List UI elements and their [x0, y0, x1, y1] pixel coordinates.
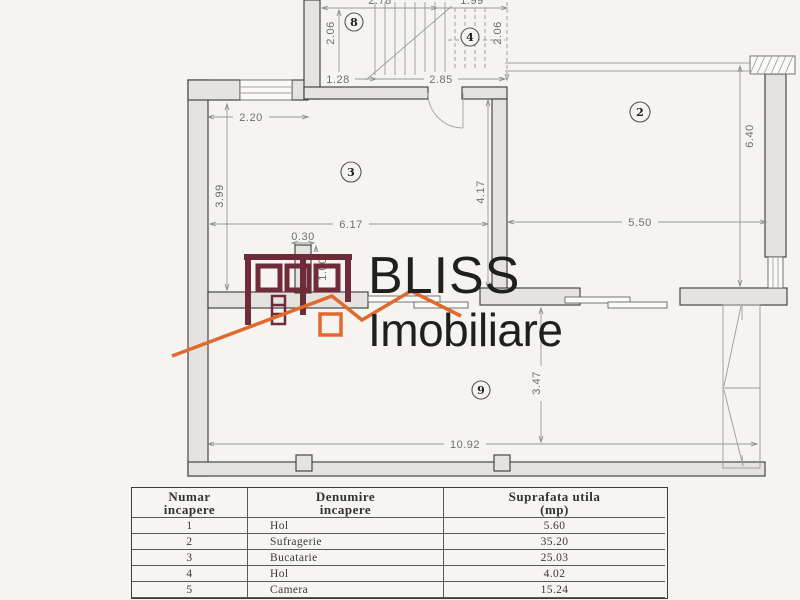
table-cell: Bucatarie	[248, 550, 444, 566]
header-line: incapere	[164, 503, 215, 516]
table-cell: 25.03	[444, 550, 665, 566]
room-label-4: 4	[466, 31, 474, 44]
room-label-9: 9	[477, 384, 485, 397]
dim-pillar-height: 1.00	[317, 257, 329, 280]
table-cell: 3	[132, 550, 248, 566]
dim-room2-width: 5.50	[628, 217, 651, 229]
table-cell: Sufragerie	[248, 534, 444, 550]
table-cell: 4.02	[444, 566, 665, 582]
room-label-2: 2	[636, 106, 644, 119]
floorplan-drawing: 2.78 1.99 2.06 2.06 1.28 2.85 2.20 3.99 …	[0, 0, 800, 487]
dim-top-left: 2.78	[368, 0, 391, 7]
dim-room9-width: 10.92	[450, 439, 480, 451]
areas-table: Numar incapere Denumire incapere Suprafa…	[131, 487, 668, 599]
staircase	[366, 2, 505, 80]
dim-stairs-right: 2.06	[492, 21, 504, 44]
dim-room2-height: 6.40	[744, 124, 756, 147]
header-line: Numar	[168, 490, 210, 503]
header-line: incapere	[320, 503, 371, 516]
dim-room3-top: 2.20	[239, 112, 262, 124]
table-header-suprafata: Suprafata utila (mp)	[444, 488, 665, 518]
table-cell: Hol	[248, 518, 444, 534]
logo-subtitle: Imobiliare	[368, 304, 562, 356]
logo-title: BLISS	[368, 247, 520, 305]
dim-room3-left: 3.99	[214, 184, 226, 207]
header-line: Denumire	[316, 490, 375, 503]
table-cell: 5	[132, 582, 248, 598]
dim-pillar-width: 0.30	[291, 231, 314, 243]
table-cell: 4	[132, 566, 248, 582]
table-cell: 1	[132, 518, 248, 534]
dim-room3-width: 6.17	[339, 219, 362, 231]
table-cell: Hol	[248, 566, 444, 582]
header-line: (mp)	[540, 503, 569, 516]
window-top-left	[240, 80, 292, 100]
table-cell: Camera	[248, 582, 444, 598]
door-room3	[428, 93, 463, 128]
table-header-denumire: Denumire incapere	[248, 488, 444, 518]
room-label-3: 3	[347, 166, 355, 179]
scanned-floorplan-page: { "logo": { "title": "BLISS", "subtitle"…	[0, 0, 800, 600]
beam-room2-top	[505, 63, 751, 71]
dim-stairs-bottom-left: 1.28	[326, 74, 349, 86]
table-header-numar: Numar incapere	[132, 488, 248, 518]
table-cell: 5.60	[444, 518, 665, 534]
window-right	[768, 257, 783, 288]
header-line: Suprafata utila	[509, 490, 601, 503]
dim-stairs-bottom-right: 2.85	[429, 74, 452, 86]
dim-top-right: 1.99	[460, 0, 483, 7]
dim-stairs-left: 2.06	[325, 21, 337, 44]
sliding-door-right	[565, 297, 667, 308]
dim-room9-height: 3.47	[531, 371, 543, 394]
window-top-right-hatched	[750, 56, 795, 74]
table-cell: 35.20	[444, 534, 665, 550]
table-cell: 2	[132, 534, 248, 550]
table-cell: 15.24	[444, 582, 665, 598]
room-label-8: 8	[350, 16, 358, 29]
dim-room3-right: 4.17	[475, 180, 487, 203]
